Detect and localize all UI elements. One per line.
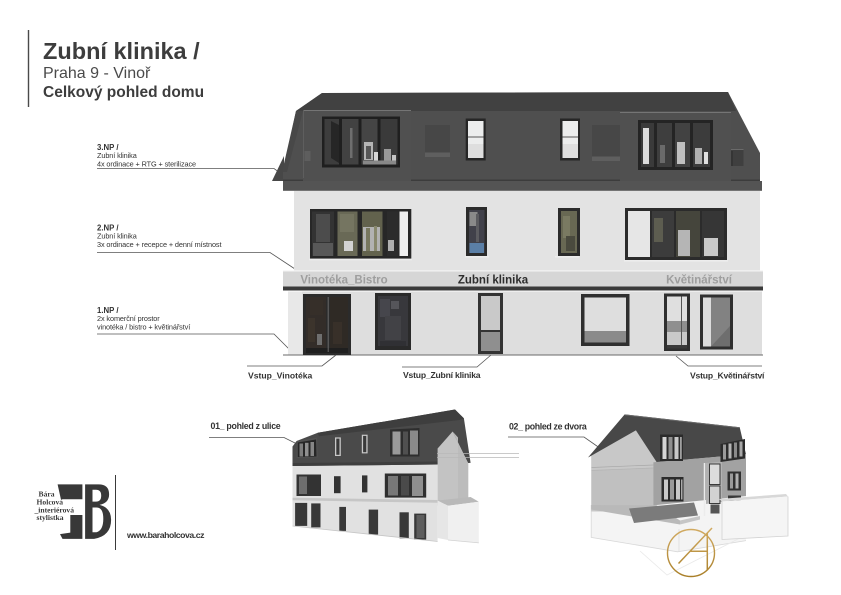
svg-text:Vstup_Vinotéka: Vstup_Vinotéka (248, 371, 313, 381)
svg-text:02_ pohled ze dvora: 02_ pohled ze dvora (509, 422, 587, 432)
svg-text:Zubní klinika: Zubní klinika (458, 275, 529, 287)
svg-text:vinotéka / bistro + květinářst: vinotéka / bistro + květinářství (97, 322, 190, 331)
svg-text:4x ordinace + RTG + sterilizac: 4x ordinace + RTG + sterilizace (97, 159, 196, 168)
svg-text:www.baraholcova.cz: www.baraholcova.cz (126, 530, 205, 540)
svg-text:Celkový pohled domu: Celkový pohled domu (43, 84, 204, 101)
svg-text:3x ordinace + recepce + denní: 3x ordinace + recepce + denní místnost (97, 240, 221, 249)
svg-text:Květinářství: Květinářství (666, 275, 733, 287)
svg-text:Vstup_Květinářství: Vstup_Květinářství (690, 371, 765, 381)
svg-text:stylistka: stylistka (37, 513, 64, 522)
svg-text:Praha 9 - Vinoř: Praha 9 - Vinoř (43, 65, 151, 82)
svg-text:01_ pohled z ulice: 01_ pohled z ulice (211, 421, 281, 431)
svg-text:Vstup_Zubní klinika: Vstup_Zubní klinika (403, 370, 481, 380)
svg-text:Zubní klinika /: Zubní klinika / (43, 38, 200, 64)
svg-text:Vinotéka_Bistro: Vinotéka_Bistro (300, 275, 387, 287)
